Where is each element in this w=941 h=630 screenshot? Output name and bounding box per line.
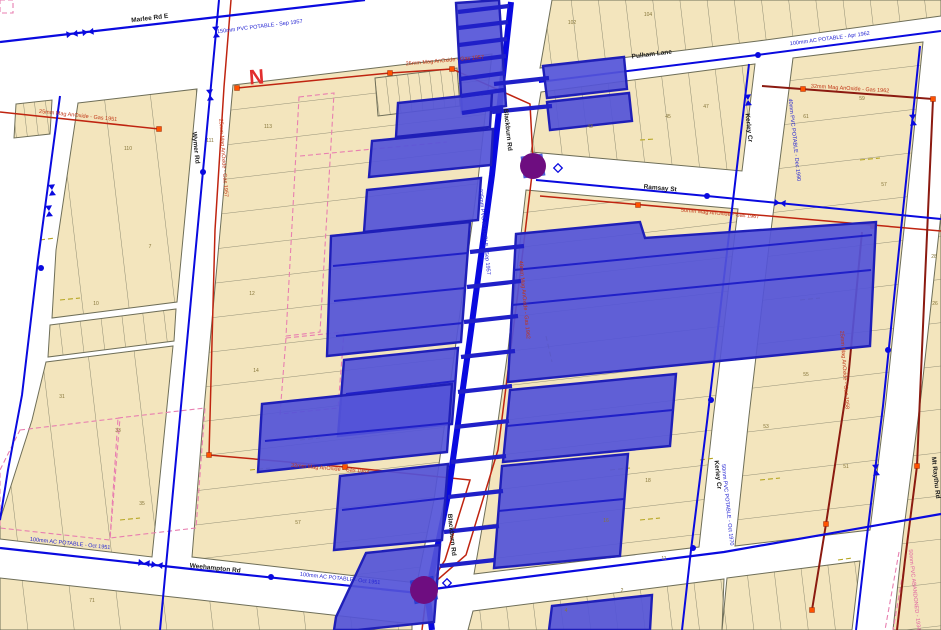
parcel-number: 2 — [621, 588, 624, 594]
map-viewport[interactable]: Marlee Rd E Wymer Rd Blackburn Rd Blackb… — [0, 0, 941, 630]
parcel-number: 26 — [932, 301, 938, 307]
parcel-number: 18 — [645, 478, 651, 484]
gas-node-icon[interactable] — [931, 97, 936, 102]
parcel-number: 43 — [587, 124, 593, 130]
water-node-icon[interactable] — [704, 193, 710, 199]
parcel-block — [14, 100, 52, 138]
parcel-number: 28 — [931, 254, 937, 260]
gas-node-icon[interactable] — [915, 464, 920, 469]
water-node-icon[interactable] — [885, 347, 891, 353]
gas-node-icon[interactable] — [235, 86, 240, 91]
parcel-number: 102 — [568, 20, 577, 26]
parcel-number: 47 — [703, 104, 709, 110]
water-node-icon[interactable] — [690, 545, 696, 551]
gas-node-icon[interactable] — [824, 522, 829, 527]
parcel-number: 7 — [149, 244, 152, 250]
parcel-number: 104 — [644, 12, 653, 18]
parcel-number: 111 — [206, 138, 214, 144]
gas-node-icon[interactable] — [810, 608, 815, 613]
parcel-number: 57 — [295, 520, 301, 526]
parcel-number: 10 — [93, 301, 99, 307]
map-canvas[interactable]: Marlee Rd E Wymer Rd Blackburn Rd Blackb… — [0, 0, 941, 630]
water-node-icon[interactable] — [708, 397, 714, 403]
parcel-number: 113 — [264, 124, 272, 130]
parcel-number: 55 — [803, 372, 809, 378]
water-node-icon[interactable] — [38, 265, 44, 271]
gas-node-icon[interactable] — [388, 71, 393, 76]
water-node-icon[interactable] — [200, 169, 206, 175]
parcel-number: 110 — [124, 146, 132, 152]
water-node-icon[interactable] — [268, 574, 274, 580]
north-indicator: N — [248, 66, 265, 90]
gas-node-icon[interactable] — [157, 127, 162, 132]
gas-node-icon[interactable] — [801, 87, 806, 92]
junction-structure-icon[interactable] — [410, 576, 438, 604]
parcel-number: 35 — [139, 501, 145, 507]
parcel-number: 57 — [881, 182, 887, 188]
gas-node-icon[interactable] — [636, 203, 641, 208]
gas-node-icon[interactable] — [450, 67, 455, 72]
parcel-number: 14 — [253, 368, 259, 374]
parcel-number: 51 — [843, 464, 849, 470]
parcel-number: 71 — [89, 598, 95, 604]
selected-parcel[interactable] — [334, 464, 448, 550]
parcel-number: 33 — [115, 428, 121, 434]
parcel-number: 61 — [803, 114, 809, 120]
parcel-number: 16 — [603, 518, 609, 524]
selected-parcel[interactable] — [494, 454, 628, 568]
parcel-number: 53 — [763, 424, 769, 430]
parcel-number: 12 — [249, 291, 255, 297]
parcel-number: 59 — [859, 96, 865, 102]
parcel-number: 45 — [665, 114, 671, 120]
water-node-icon[interactable] — [755, 52, 761, 58]
gas-node-icon[interactable] — [207, 453, 212, 458]
parcel-number: 11 — [661, 556, 666, 562]
parcel-number: 4 — [565, 608, 568, 614]
parcel-number: 31 — [59, 394, 65, 400]
junction-structure-icon[interactable] — [520, 153, 546, 179]
